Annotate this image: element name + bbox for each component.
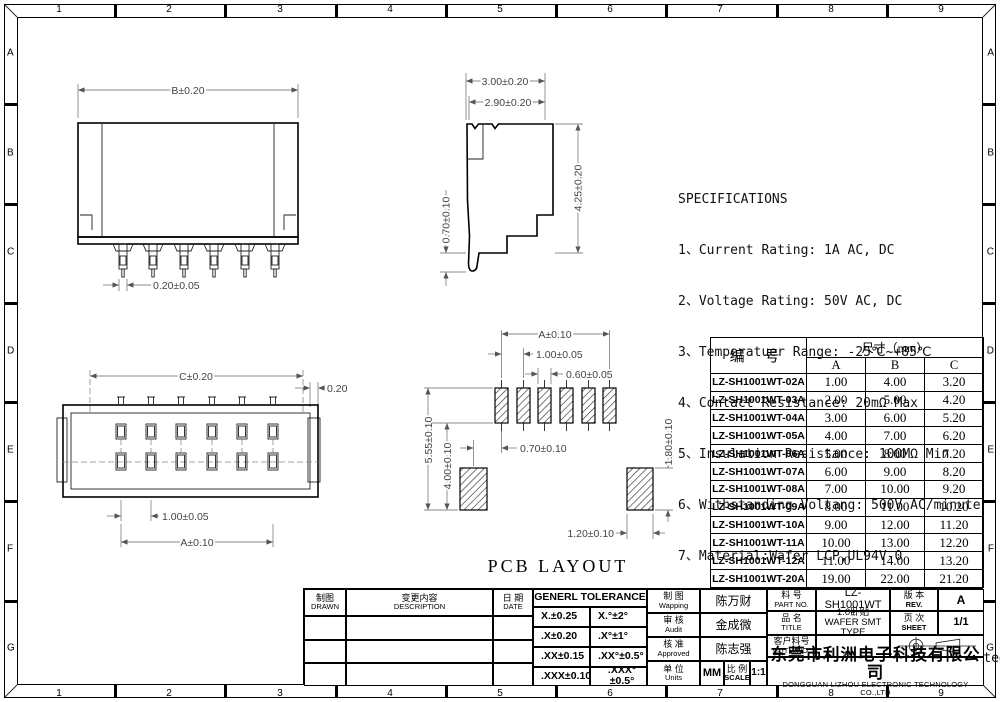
tolerance-linear: .XXX±0.10: [533, 667, 590, 687]
sheet-label: 页 次 SHEET: [890, 611, 938, 635]
title-block: 制图 DRAWN 变更内容 DESCRIPTION 日 期 DATE GENER…: [303, 588, 983, 685]
size-table-dim-header: 尺寸（mm）: [807, 338, 984, 358]
sheet-value: 1/1: [938, 611, 984, 635]
zone-col: 1: [56, 688, 62, 699]
dim-top-width: C±0.20: [179, 371, 213, 383]
dim-pcb-height-inner: 4.00±0.10: [442, 443, 454, 490]
dim-pcb-pad-width: 0.60±0.05: [566, 369, 613, 381]
revision-cell: [346, 640, 493, 663]
size-table-part-header: 编 号: [711, 338, 807, 374]
revision-cell: [346, 616, 493, 640]
tolerance-angular: X.°±2°: [590, 607, 647, 627]
zone-row: A: [987, 48, 994, 59]
pcb-layout-drawing: A±0.10 1.00±0.05 0.60±0.05 0.70±0.10 5.5…: [420, 320, 712, 584]
mapping-value: 陈万财: [700, 589, 767, 613]
zone-row: D: [7, 346, 14, 357]
dim-side-depth-inner: 2.90±0.20: [485, 97, 532, 109]
dim-front-pin-width: 0.20±0.05: [153, 280, 200, 292]
table-row: LZ-SH1001WT-05A4.007.006.20: [711, 427, 984, 445]
company-name-cn: 东莞市利洲电子科技有限公司: [768, 646, 983, 681]
size-table-col-b: B: [866, 358, 925, 374]
revision-cell: [493, 640, 533, 663]
side-view-body: [467, 124, 553, 271]
product-label: 品 名 TITLE: [767, 611, 816, 635]
table-row: LZ-SH1001WT-11A10.0013.0012.20: [711, 534, 984, 552]
table-row: LZ-SH1001WT-12A11.0014.0013.20: [711, 552, 984, 570]
revision-cell: [304, 640, 346, 663]
dim-top-pitch: 1.00±0.05: [162, 511, 209, 523]
table-row: LZ-SH1001WT-20A19.0022.0021.20: [711, 570, 984, 588]
tolerance-angular: .X°±1°: [590, 627, 647, 647]
side-view-drawing: 3.00±0.20 2.90±0.20 4.25±0.20 0.70±0.10: [430, 60, 610, 300]
rev-value: A: [938, 589, 984, 611]
size-table: 编 号 尺寸（mm） A B C LZ-SH1001WT-02A1.004.00…: [710, 337, 984, 588]
zone-col: 6: [607, 4, 613, 15]
tolerance-angular: .XXX°±0.5°: [590, 667, 647, 687]
units-value: MM: [700, 661, 724, 686]
top-view-contacts: [116, 424, 278, 470]
table-row: LZ-SH1001WT-07A6.009.008.20: [711, 463, 984, 481]
top-view-body: [57, 397, 320, 497]
tolerance-header: GENERL TOLERANCE: [533, 589, 647, 607]
zone-col: 8: [828, 4, 834, 15]
scale-label: 比 例 SCALE: [724, 661, 750, 686]
revision-cell: [493, 663, 533, 686]
company-cell: 东莞市利洲电子科技有限公司 DONGGUAN LIZHOU ELECTRONIC…: [767, 657, 984, 686]
tolerance-linear: X.±0.25: [533, 607, 590, 627]
zone-col: 2: [166, 4, 172, 15]
front-view-body: [78, 123, 298, 277]
mapping-label: 制 图 Wapping: [647, 589, 700, 613]
tolerance-linear: .X±0.20: [533, 627, 590, 647]
zone-col: 4: [387, 688, 393, 699]
zone-row: A: [7, 48, 14, 59]
zone-col: 5: [497, 4, 503, 15]
dim-pcb-pitch: 1.00±0.05: [536, 349, 583, 361]
tolerance-linear: .XX±0.15: [533, 647, 590, 667]
zone-col: 4: [387, 4, 393, 15]
revision-cell: [304, 616, 346, 640]
scale-value: 1:1: [750, 661, 767, 686]
top-view-drawing: C±0.20 0.20 1.00±0.05 A±0.10: [55, 355, 355, 570]
dim-top-edge-gap: 0.20: [327, 383, 348, 395]
dim-side-height: 4.25±0.20: [573, 165, 585, 212]
size-table-col-a: A: [807, 358, 866, 374]
dim-pcb-height-total: 5.55±0.10: [423, 417, 435, 464]
zone-row: C: [7, 247, 14, 258]
dim-pcb-side-pad-height: 1.80±0.10: [663, 419, 675, 466]
table-row: LZ-SH1001WT-06A5.008.007.20: [711, 445, 984, 463]
front-view-drawing: B±0.20 0.20±0.05: [55, 72, 325, 307]
table-row: LZ-SH1001WT-10A9.0012.0011.20: [711, 516, 984, 534]
table-row: LZ-SH1001WT-03A2.005.004.20: [711, 391, 984, 409]
audit-label: 审 核 Audit: [647, 613, 700, 637]
revision-cell: [304, 663, 346, 686]
revision-cell: [493, 616, 533, 640]
dim-top-span: A±0.10: [180, 537, 213, 549]
zone-row: G: [7, 643, 15, 654]
rev-label: 版 本 REV.: [890, 589, 938, 611]
zone-col: 9: [938, 4, 944, 15]
zone-row: F: [7, 544, 13, 555]
table-row: LZ-SH1001WT-04A3.006.005.20: [711, 409, 984, 427]
product-value: 1.0卧贴 WAFER SMT TYPE: [816, 611, 890, 635]
approved-label: 核 准 Approved: [647, 637, 700, 661]
spec-line: 1、Current Rating: 1A AC, DC: [678, 242, 990, 259]
drawn-header: 制图 DRAWN: [304, 589, 346, 616]
approved-value: 陈志强: [700, 637, 767, 661]
date-header: 日 期 DATE: [493, 589, 533, 616]
zone-col: 3: [277, 688, 283, 699]
zone-col: 2: [166, 688, 172, 699]
specifications-title: SPECIFICATIONS: [678, 191, 990, 208]
dim-pcb-offset: 0.70±0.10: [520, 443, 567, 455]
drawing-sheet: 1 2 3 4 5 6 7 8 9 1 2 3 4 5 6 7 8 9 A B …: [0, 0, 1000, 702]
front-view-pins: [119, 244, 279, 277]
zone-row: B: [7, 148, 14, 159]
table-row: LZ-SH1001WT-09A8.0011.0010.20: [711, 498, 984, 516]
description-header: 变更内容 DESCRIPTION: [346, 589, 493, 616]
dim-front-width: B±0.20: [171, 85, 204, 97]
zone-col: 1: [56, 4, 62, 15]
spec-line: 2、Voltage Rating: 50V AC, DC: [678, 293, 990, 310]
size-table-col-c: C: [925, 358, 984, 374]
units-label: 单 位 Units: [647, 661, 700, 686]
zone-col: 7: [717, 4, 723, 15]
dim-side-depth-outer: 3.00±0.20: [482, 76, 529, 88]
table-row: LZ-SH1001WT-08A7.0010.009.20: [711, 480, 984, 498]
zone-col: 3: [277, 4, 283, 15]
zone-col: 6: [607, 688, 613, 699]
side-view-dimensions: 3.00±0.20 2.90±0.20 4.25±0.20 0.70±0.10: [440, 73, 585, 286]
pcb-layout-title: PCB LAYOUT: [488, 556, 629, 576]
table-row: LZ-SH1001WT-02A1.004.003.20: [711, 374, 984, 392]
zone-col: 5: [497, 688, 503, 699]
zone-row: E: [7, 445, 14, 456]
top-view-dimensions: C±0.20 0.20 1.00±0.05 A±0.10: [90, 370, 348, 549]
audit-value: 金成微: [700, 613, 767, 637]
company-name-en: DONGGUAN LIZHOU ELECTRONIC TECHNOLOGY CO…: [768, 681, 983, 697]
top-view-leads: [117, 397, 277, 405]
part-no-label: 料 号 PART NO.: [767, 589, 816, 611]
revision-cell: [346, 663, 493, 686]
dim-pcb-span: A±0.10: [538, 329, 571, 341]
dim-side-foot: 0.70±0.10: [441, 197, 453, 244]
dim-pcb-side-pad-width: 1.20±0.10: [567, 528, 614, 540]
